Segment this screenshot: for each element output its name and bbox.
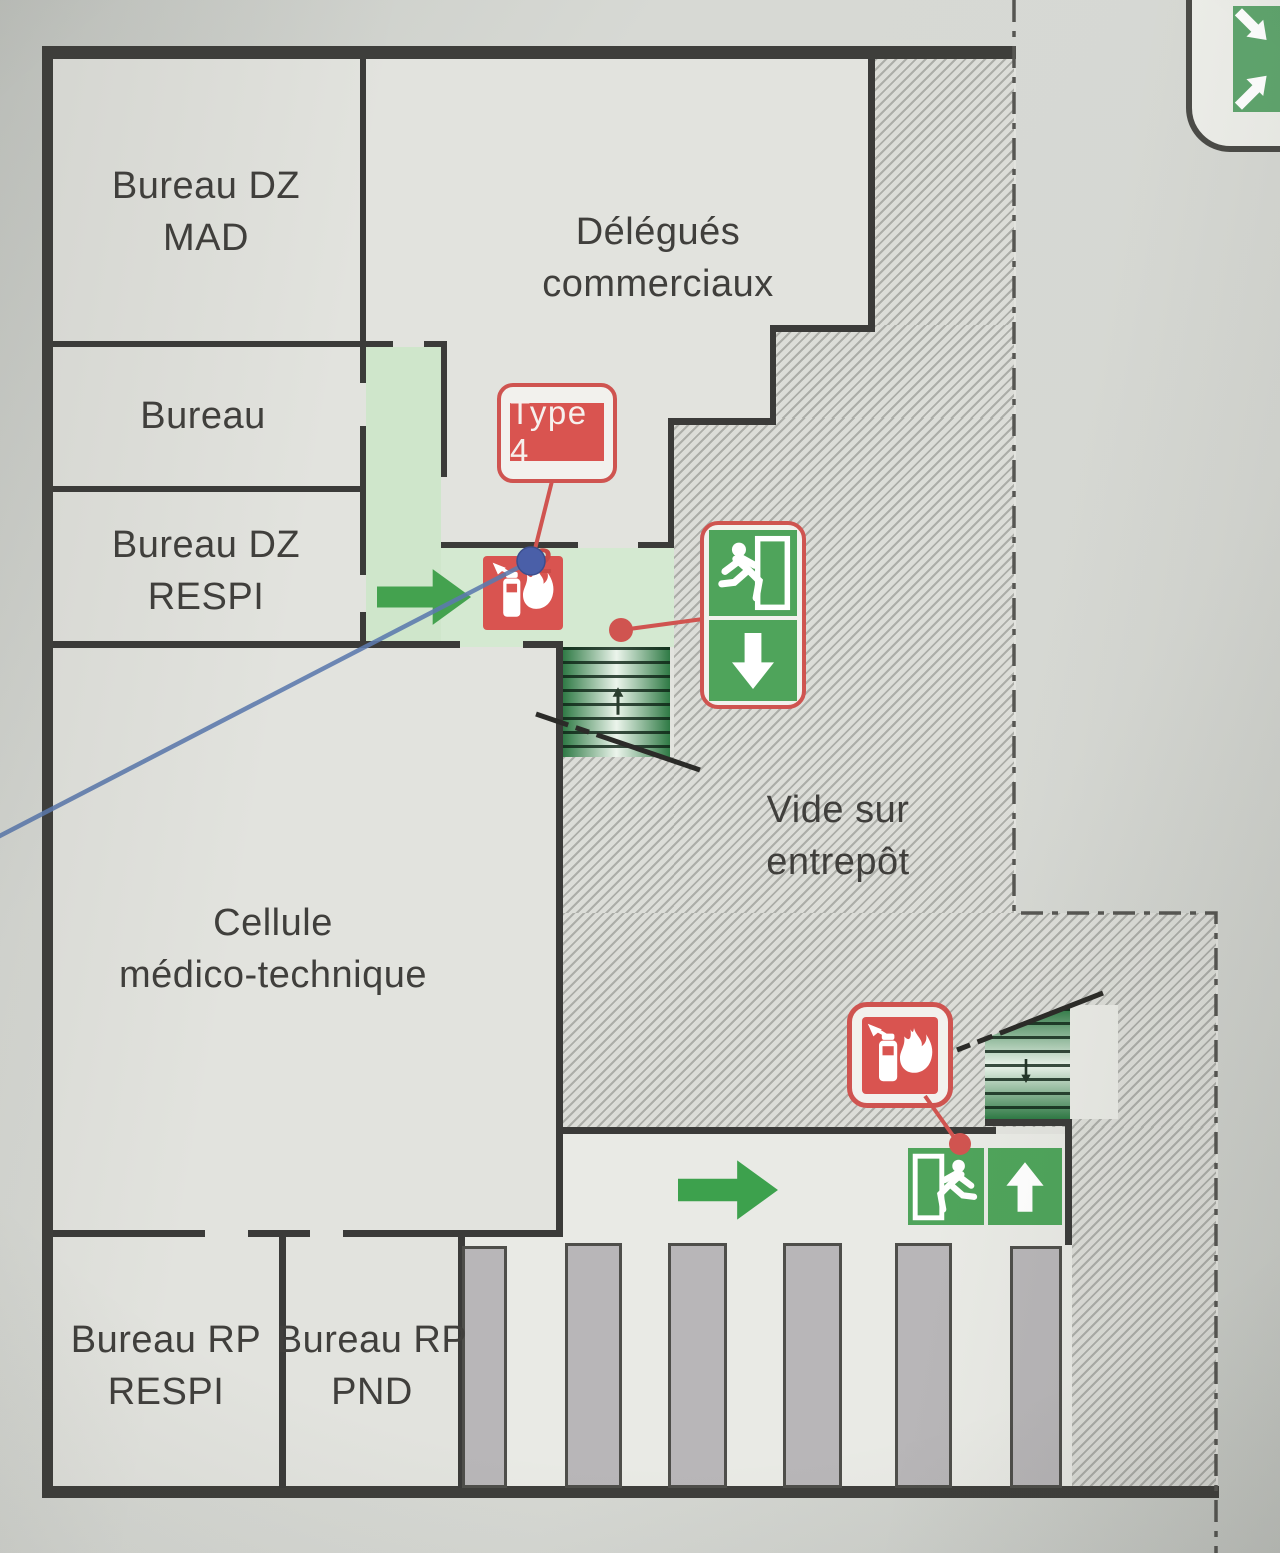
assembly-point-icon xyxy=(1233,6,1280,112)
room-label-delegues-commerciaux: Déléguéscommerciaux xyxy=(498,206,818,310)
exit-direction-down-icon xyxy=(709,620,797,701)
type4-callout-sign: Type 4 xyxy=(497,383,617,483)
wall xyxy=(248,1230,310,1237)
wall xyxy=(770,325,776,425)
pillar xyxy=(668,1243,727,1488)
pillar xyxy=(1010,1246,1062,1488)
exit-direction-up-icon xyxy=(988,1148,1062,1225)
room-label-bureau-rp-pnd: Bureau RPPND xyxy=(212,1314,532,1418)
evacuation-direction-right-icon xyxy=(377,565,473,629)
wall xyxy=(53,641,460,648)
wall xyxy=(360,347,366,383)
wall xyxy=(668,418,674,548)
stairs-up-arrow-icon xyxy=(603,652,633,750)
fire-extinguisher-icon xyxy=(862,1017,938,1094)
room-label-bureau: Bureau xyxy=(43,390,363,442)
room-label-cellule-medico-technique: Cellulemédico-technique xyxy=(73,897,473,1001)
evacuation-plan: Bureau DZMAD Déléguéscommerciaux Bureau … xyxy=(0,0,1280,1553)
pillar xyxy=(895,1243,952,1488)
room-label-bureau-dz-respi: Bureau DZRESPI xyxy=(46,519,366,623)
outer-wall-top xyxy=(42,46,1016,59)
extinguisher-count-badge: 2 xyxy=(533,542,552,582)
stairs-down-arrow-icon xyxy=(1013,1030,1039,1112)
void-hatch-area xyxy=(563,757,674,913)
wall xyxy=(770,325,875,332)
warehouse-floor xyxy=(465,1237,1072,1488)
evacuation-direction-right-icon xyxy=(678,1156,780,1224)
void-hatch-area xyxy=(875,59,1014,332)
wall xyxy=(1065,1119,1072,1245)
emergency-exit-runner-icon xyxy=(908,1148,984,1225)
pillar xyxy=(565,1243,622,1488)
emergency-exit-runner-icon xyxy=(709,530,797,616)
wall xyxy=(343,1230,563,1237)
wall xyxy=(868,59,875,332)
wall xyxy=(441,542,578,548)
room-label-bureau-dz-mad: Bureau DZMAD xyxy=(46,160,366,264)
pillar xyxy=(783,1243,842,1488)
area-label-vide-sur-entrepot: Vide surentrepôt xyxy=(678,784,998,888)
wall xyxy=(563,1127,996,1134)
wall xyxy=(668,418,776,425)
wall xyxy=(556,645,563,1237)
void-hatch-area xyxy=(776,325,1014,425)
wall xyxy=(53,486,363,492)
stair-landing xyxy=(1070,1005,1118,1119)
void-hatch-area xyxy=(1072,1127,1216,1488)
wall xyxy=(53,341,393,347)
wall xyxy=(985,1119,1072,1126)
type4-label: Type 4 xyxy=(510,403,604,461)
wall xyxy=(53,1230,205,1237)
wall xyxy=(441,347,447,477)
